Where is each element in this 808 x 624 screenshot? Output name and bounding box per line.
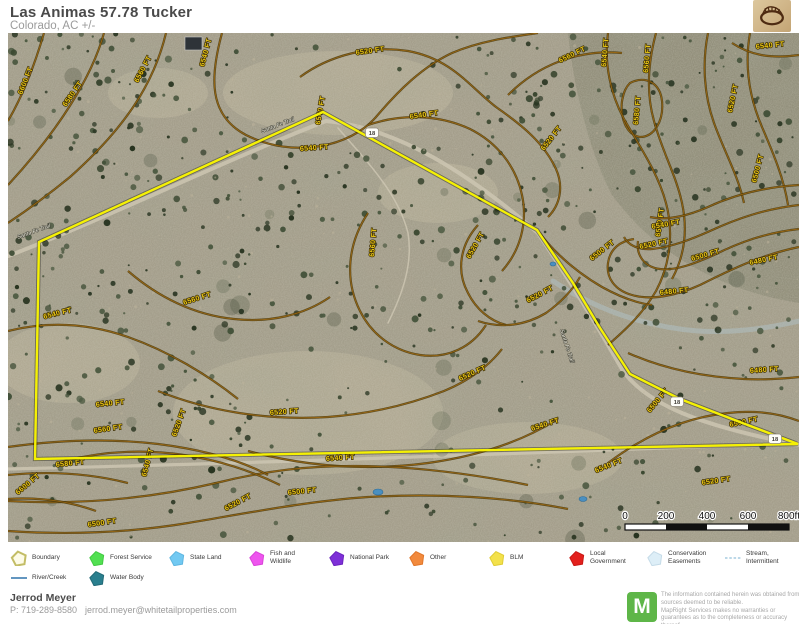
map-image: 6600 FT6580 FT6560 FT6540 FT6540 FT6520 …: [8, 33, 799, 542]
legend-item-forest-service: Forest Service: [88, 550, 152, 566]
legend-item-state-land: State Land: [168, 550, 221, 566]
legend-item-fish-and-wildlife: Fish andWildlife: [248, 550, 295, 566]
legend-item-conservation-easements: ConservationEasements: [646, 550, 706, 566]
legend-label-conservation-easements: ConservationEasements: [668, 550, 706, 566]
agent-phone: P: 719-289-8580: [10, 605, 77, 615]
building: [185, 37, 202, 50]
legend-label-water-body: Water Body: [110, 574, 144, 582]
road-shield-number: 18: [674, 400, 681, 406]
map-disclaimer: The information contained herein was obt…: [661, 592, 807, 624]
whitetail-properties-logo: [753, 0, 791, 32]
scale-bar-label: 0: [622, 511, 628, 522]
scale-bar-label: 200: [658, 511, 675, 522]
pond: [579, 497, 587, 502]
local-government-icon: [568, 550, 586, 566]
blm-icon: [488, 550, 506, 566]
legend-label-local-government: LocalGovernment: [590, 550, 626, 566]
forest-service-icon: [88, 550, 106, 566]
pond: [550, 262, 556, 266]
page-subtitle: Colorado, AC +/-: [10, 20, 95, 32]
legend-item-water-body: Water Body: [88, 570, 144, 586]
scale-bar-label: 400: [699, 511, 716, 522]
legend-item-blm: BLM: [488, 550, 523, 566]
legend-item-local-government: LocalGovernment: [568, 550, 626, 566]
legend-label-national-park: National Park: [350, 554, 389, 562]
agent-email: jerrod.meyer@whitetailproperties.com: [85, 605, 237, 615]
road-shield-number: 18: [772, 437, 779, 443]
state-land-icon: [168, 550, 186, 566]
legend-item-stream-intermittent: Stream,Intermittent: [724, 550, 779, 566]
road-shield-number: 18: [369, 131, 376, 137]
legend-label-state-land: State Land: [190, 554, 221, 562]
map-canvas: 6600 FT6580 FT6560 FT6540 FT6540 FT6520 …: [8, 33, 799, 542]
antlers-icon: [756, 3, 788, 29]
water-body-icon: [88, 570, 106, 586]
scale-bar-label: 800ft: [778, 511, 799, 522]
legend-item-national-park: National Park: [328, 550, 389, 566]
legend-label-stream-intermittent: Stream,Intermittent: [746, 550, 779, 566]
legend-label-boundary: Boundary: [32, 554, 60, 562]
legend-label-blm: BLM: [510, 554, 523, 562]
stream-intermittent-icon: [724, 550, 742, 566]
legend-label-other: Other: [430, 554, 446, 562]
legend-item-other: Other: [408, 550, 446, 566]
mapright-initial: M: [633, 595, 651, 619]
fish-and-wildlife-icon: [248, 550, 266, 566]
legend-label-river-creek: River/Creek: [32, 574, 66, 582]
agent-name: Jerrod Meyer: [10, 592, 76, 604]
scale-bar-label: 600: [740, 511, 757, 522]
page-title: Las Animas 57.78 Tucker: [10, 4, 192, 21]
other-icon: [408, 550, 426, 566]
legend-label-forest-service: Forest Service: [110, 554, 152, 562]
legend-item-river-creek: River/Creek: [10, 570, 66, 586]
conservation-easements-icon: [646, 550, 664, 566]
river-creek-icon: [10, 570, 28, 586]
pond: [373, 489, 383, 495]
legend-label-fish-and-wildlife: Fish andWildlife: [270, 550, 295, 566]
legend-item-boundary: Boundary: [10, 550, 60, 566]
national-park-icon: [328, 550, 346, 566]
page: Las Animas 57.78 Tucker Colorado, AC +/-…: [0, 0, 808, 624]
boundary-icon: [10, 550, 28, 566]
legend: BoundaryForest ServiceState LandFish and…: [0, 544, 808, 588]
mapright-logo: M: [627, 592, 657, 622]
